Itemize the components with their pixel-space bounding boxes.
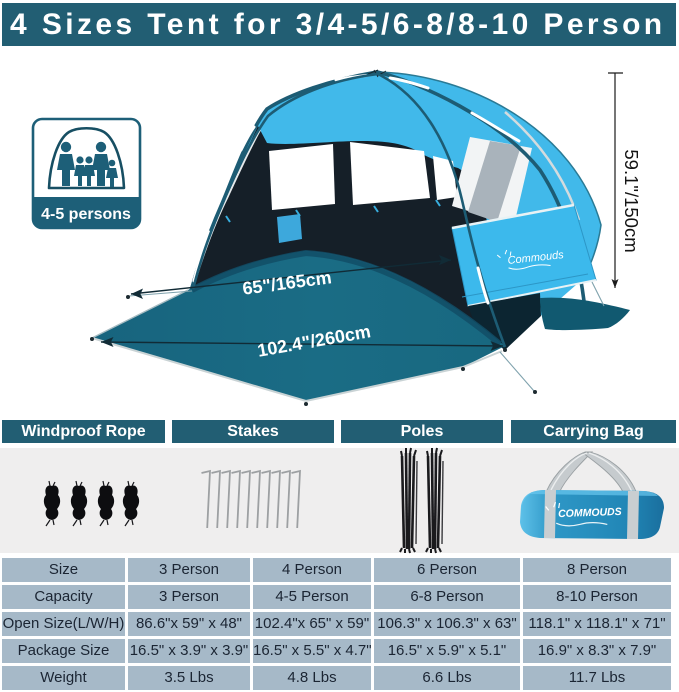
- svg-text:4-5 persons: 4-5 persons: [41, 206, 131, 223]
- svg-text:59.1"/150cm: 59.1"/150cm: [621, 149, 642, 252]
- svg-text:COMMOUDS: COMMOUDS: [558, 506, 622, 520]
